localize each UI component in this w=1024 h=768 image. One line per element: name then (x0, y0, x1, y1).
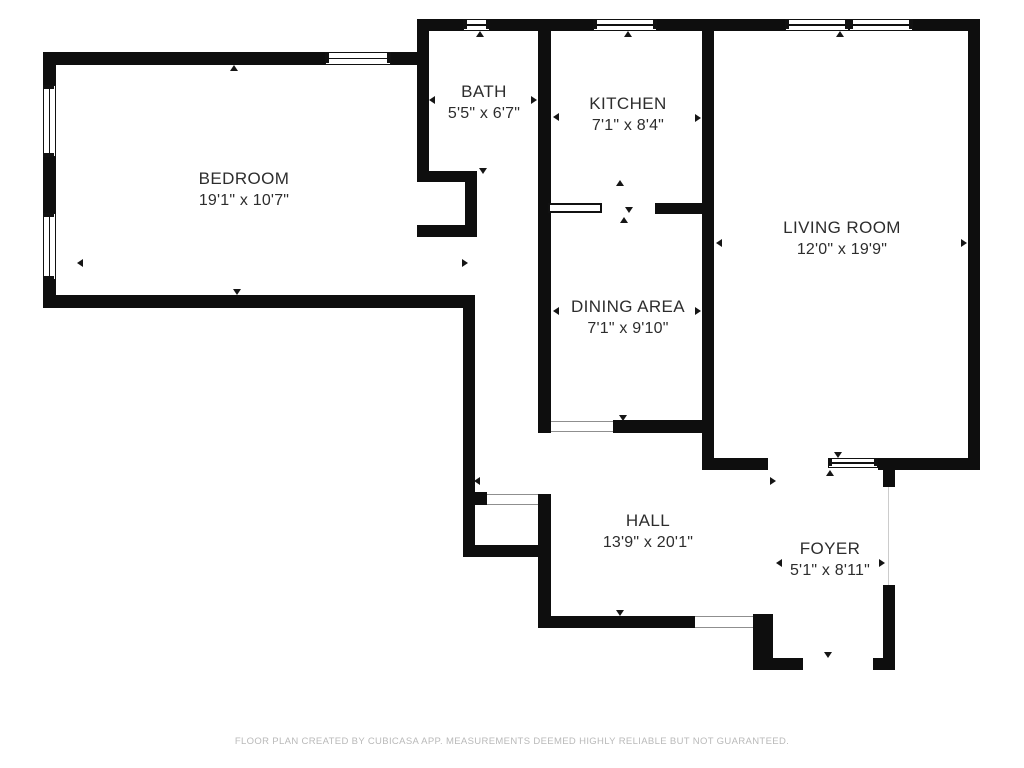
room-name-kitchen: KITCHEN (589, 93, 666, 115)
window (849, 19, 913, 31)
window-cap (44, 214, 54, 217)
dimension-arrow (474, 477, 480, 485)
window-cap (387, 53, 390, 63)
window (828, 458, 878, 468)
window-cap (594, 20, 597, 29)
kitchen-counter (548, 203, 602, 213)
room-dims-living-room: 12'0" x 19'9" (783, 239, 901, 261)
room-dims-foyer: 5'1" x 8'11" (790, 560, 870, 582)
dimension-arrow (834, 452, 842, 458)
window-cap (653, 20, 656, 29)
room-name-foyer: FOYER (790, 538, 870, 560)
window-centerline (464, 24, 488, 26)
wall-segment (702, 458, 768, 470)
window-cap (874, 459, 877, 466)
room-label-bath: BATH5'5" x 6'7" (448, 81, 520, 125)
window (593, 19, 657, 31)
dimension-arrow (429, 96, 435, 104)
wall-segment (655, 203, 702, 214)
wall-segment (391, 52, 429, 65)
footer-disclaimer: FLOOR PLAN CREATED BY CUBICASA APP. MEAS… (235, 736, 789, 747)
room-label-foyer: FOYER5'1" x 8'11" (790, 538, 870, 582)
wall-segment (538, 19, 551, 433)
window-cap (909, 20, 912, 29)
window-cap (850, 20, 853, 29)
room-dims-kitchen: 7'1" x 8'4" (589, 115, 666, 137)
room-label-bedroom: BEDROOM19'1" x 10'7" (199, 168, 290, 212)
room-dims-hall: 13'9" x 20'1" (603, 532, 693, 554)
door-threshold (551, 421, 613, 432)
room-dims-bath: 5'5" x 6'7" (448, 103, 520, 125)
dimension-arrow (695, 307, 701, 315)
dimension-arrow (531, 96, 537, 104)
window-cap (829, 459, 832, 466)
dimension-arrow (553, 307, 559, 315)
dimension-arrow (620, 217, 628, 223)
dimension-arrow (961, 239, 967, 247)
dimension-arrow (462, 259, 468, 267)
window (325, 52, 391, 65)
room-label-dining-area: DINING AREA7'1" x 9'10" (571, 296, 685, 340)
wall-segment (878, 458, 980, 470)
wall-segment (657, 19, 785, 31)
dimension-arrow (553, 113, 559, 121)
dimension-arrow (619, 415, 627, 421)
wall-segment (702, 19, 714, 470)
wall-segment (475, 492, 487, 505)
wall-segment (538, 616, 695, 628)
wall-segment (968, 19, 980, 470)
dimension-arrow (879, 559, 885, 567)
dimension-arrow (836, 31, 844, 37)
window (43, 85, 56, 157)
wall-segment (753, 614, 773, 670)
dimension-arrow (230, 65, 238, 71)
room-dims-dining-area: 7'1" x 9'10" (571, 318, 685, 340)
window-cap (44, 86, 54, 89)
window-cap (44, 153, 54, 156)
room-name-living-room: LIVING ROOM (783, 217, 901, 239)
window (43, 213, 56, 280)
dimension-arrow (624, 31, 632, 37)
window-cap (326, 53, 329, 63)
window-cap (486, 20, 489, 29)
window-centerline (326, 58, 389, 60)
room-label-kitchen: KITCHEN7'1" x 8'4" (589, 93, 666, 137)
room-name-hall: HALL (603, 510, 693, 532)
wall-segment (463, 308, 475, 557)
window-cap (464, 20, 467, 29)
dimension-arrow (616, 180, 624, 186)
dimension-arrow (476, 31, 484, 37)
wall-segment (417, 19, 429, 182)
window (463, 19, 490, 31)
wall-segment (613, 420, 714, 433)
window-centerline (49, 86, 51, 155)
window-centerline (850, 24, 911, 26)
dimension-arrow (625, 207, 633, 213)
dimension-arrow (824, 652, 832, 658)
dimension-arrow (695, 114, 701, 122)
window-centerline (786, 24, 847, 26)
room-label-living-room: LIVING ROOM12'0" x 19'9" (783, 217, 901, 261)
window-centerline (829, 462, 876, 464)
window-centerline (594, 24, 655, 26)
door-threshold (487, 494, 538, 505)
dimension-arrow (233, 289, 241, 295)
window-cap (786, 20, 789, 29)
dimension-arrow (826, 470, 834, 476)
room-name-dining-area: DINING AREA (571, 296, 685, 318)
window (785, 19, 849, 31)
wall-segment (43, 52, 56, 85)
door-threshold (695, 616, 753, 628)
wall-segment (43, 157, 56, 213)
room-label-hall: HALL13'9" x 20'1" (603, 510, 693, 554)
wall-segment (43, 295, 475, 308)
room-dims-bedroom: 19'1" x 10'7" (199, 190, 290, 212)
wall-segment (43, 52, 325, 65)
wall-segment (417, 225, 477, 237)
floorplan-canvas: BEDROOM19'1" x 10'7"BATH5'5" x 6'7"KITCH… (0, 0, 1024, 768)
window-cap (44, 276, 54, 279)
wall-segment (538, 494, 551, 628)
wall-segment (873, 658, 895, 670)
wall-segment (883, 470, 895, 487)
window-cap (845, 20, 848, 29)
dimension-arrow (770, 477, 776, 485)
opening-hairline (888, 487, 889, 585)
dimension-arrow (776, 559, 782, 567)
dimension-arrow (616, 610, 624, 616)
room-name-bedroom: BEDROOM (199, 168, 290, 190)
room-name-bath: BATH (448, 81, 520, 103)
dimension-arrow (77, 259, 83, 267)
dimension-arrow (479, 168, 487, 174)
window-centerline (49, 214, 51, 278)
dimension-arrow (716, 239, 722, 247)
